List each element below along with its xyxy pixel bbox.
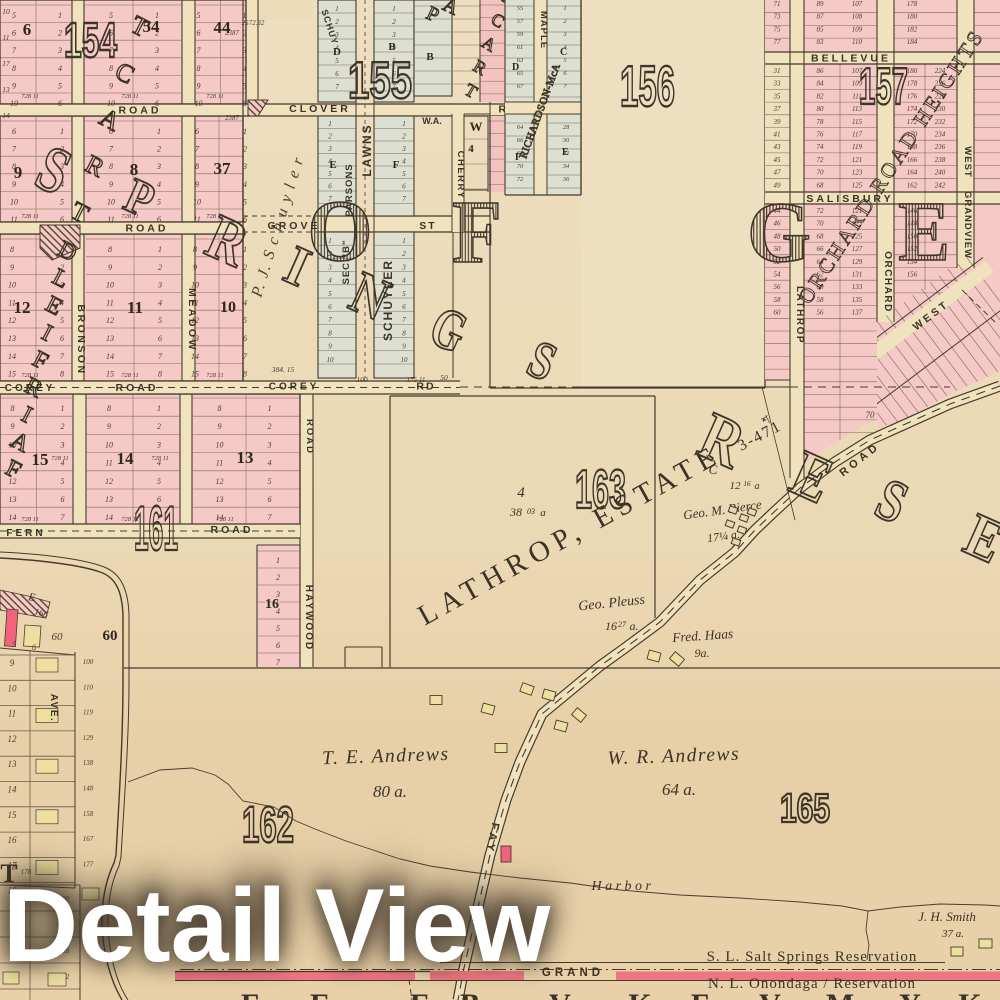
svg-text:8: 8 bbox=[195, 162, 199, 171]
svg-text:2: 2 bbox=[276, 573, 280, 582]
svg-text:ROAD: ROAD bbox=[304, 419, 315, 455]
svg-text:W: W bbox=[470, 119, 483, 134]
svg-text:8: 8 bbox=[328, 329, 332, 337]
svg-text:4: 4 bbox=[155, 64, 159, 73]
svg-text:11: 11 bbox=[216, 459, 223, 468]
svg-text:ROAD: ROAD bbox=[211, 524, 254, 536]
svg-text:175 11: 175 11 bbox=[407, 376, 426, 384]
svg-text:33: 33 bbox=[773, 80, 782, 88]
svg-text:4: 4 bbox=[335, 44, 339, 52]
svg-text:a: a bbox=[540, 507, 546, 519]
svg-text:6: 6 bbox=[243, 334, 247, 343]
svg-text:38: 38 bbox=[509, 505, 522, 519]
svg-text:60: 60 bbox=[774, 309, 782, 317]
svg-text:9: 9 bbox=[195, 180, 199, 189]
svg-text:4: 4 bbox=[58, 64, 62, 73]
svg-text:17: 17 bbox=[2, 59, 10, 68]
svg-text:10: 10 bbox=[191, 281, 199, 290]
svg-text:158: 158 bbox=[83, 810, 94, 818]
svg-text:GRAND: GRAND bbox=[542, 967, 604, 979]
svg-text:3: 3 bbox=[401, 263, 406, 271]
svg-text:84: 84 bbox=[817, 80, 825, 88]
svg-text:12: 12 bbox=[8, 316, 16, 325]
svg-text:5: 5 bbox=[12, 11, 16, 20]
svg-text:2: 2 bbox=[402, 133, 406, 141]
svg-text:10: 10 bbox=[105, 440, 113, 449]
svg-text:10: 10 bbox=[220, 299, 236, 316]
svg-text:F: F bbox=[393, 159, 400, 171]
svg-text:1: 1 bbox=[276, 556, 280, 565]
svg-text:5: 5 bbox=[61, 477, 65, 486]
svg-text:3: 3 bbox=[334, 31, 339, 39]
svg-text:28: 28 bbox=[563, 124, 570, 131]
svg-text:70: 70 bbox=[817, 169, 825, 177]
svg-text:14: 14 bbox=[191, 352, 199, 361]
svg-text:86: 86 bbox=[817, 67, 825, 75]
svg-text:10: 10 bbox=[10, 99, 18, 108]
svg-text:156: 156 bbox=[620, 54, 675, 118]
svg-text:3: 3 bbox=[267, 440, 272, 449]
svg-text:11: 11 bbox=[105, 459, 112, 468]
svg-text:10: 10 bbox=[8, 683, 18, 693]
svg-text:3: 3 bbox=[327, 145, 332, 153]
svg-text:12: 12 bbox=[105, 477, 113, 486]
svg-text:60: 60 bbox=[103, 628, 118, 644]
svg-text:5: 5 bbox=[402, 170, 406, 178]
svg-text:13: 13 bbox=[237, 448, 254, 467]
svg-text:AVE.: AVE. bbox=[48, 694, 59, 723]
svg-text:9: 9 bbox=[12, 81, 16, 90]
svg-text:15: 15 bbox=[8, 810, 18, 820]
svg-text:3: 3 bbox=[401, 145, 406, 153]
svg-text:9: 9 bbox=[10, 658, 15, 668]
svg-text:6: 6 bbox=[32, 643, 36, 652]
svg-text:5: 5 bbox=[60, 316, 64, 325]
svg-text:5: 5 bbox=[328, 290, 332, 298]
svg-text:9: 9 bbox=[107, 422, 111, 431]
svg-text:5: 5 bbox=[402, 290, 406, 298]
svg-text:2: 2 bbox=[158, 263, 162, 272]
svg-text:109: 109 bbox=[852, 25, 863, 33]
svg-text:9: 9 bbox=[402, 343, 406, 351]
svg-text:70: 70 bbox=[866, 410, 876, 420]
svg-text:167: 167 bbox=[83, 835, 94, 843]
svg-text:11: 11 bbox=[193, 215, 200, 224]
svg-text:D: D bbox=[512, 62, 519, 73]
svg-text:6: 6 bbox=[197, 29, 201, 38]
svg-text:E: E bbox=[310, 988, 330, 1000]
svg-text:V: V bbox=[759, 988, 781, 1000]
svg-text:K: K bbox=[958, 988, 982, 1000]
svg-text:6: 6 bbox=[402, 183, 406, 191]
svg-text:162: 162 bbox=[242, 796, 294, 853]
svg-text:11: 11 bbox=[10, 215, 17, 224]
svg-text:129: 129 bbox=[852, 258, 863, 266]
svg-text:9: 9 bbox=[11, 422, 15, 431]
svg-text:16: 16 bbox=[8, 835, 18, 845]
svg-text:133: 133 bbox=[852, 283, 863, 291]
svg-text:72: 72 bbox=[517, 176, 524, 183]
svg-text:10: 10 bbox=[401, 356, 409, 364]
svg-text:4: 4 bbox=[268, 459, 272, 468]
svg-text:13: 13 bbox=[9, 495, 17, 504]
svg-text:7: 7 bbox=[402, 195, 406, 203]
svg-text:121: 121 bbox=[852, 156, 863, 164]
svg-text:S. L. Salt Springs Reser: S. L. Salt Springs Reservation bbox=[707, 949, 918, 965]
svg-text:4: 4 bbox=[402, 158, 406, 166]
svg-text:89: 89 bbox=[817, 0, 825, 8]
svg-text:37 a.: 37 a. bbox=[941, 928, 964, 940]
svg-text:T. E. Andrews: T. E. Andrews bbox=[322, 744, 450, 769]
svg-text:N. L. Onondaga / Reservati: N. L. Onondaga / Reservation bbox=[708, 976, 916, 992]
svg-text:13: 13 bbox=[8, 334, 16, 343]
svg-text:39: 39 bbox=[773, 118, 782, 126]
svg-text:728 11: 728 11 bbox=[121, 372, 138, 379]
svg-text:3: 3 bbox=[391, 31, 396, 39]
svg-text:6: 6 bbox=[23, 20, 32, 39]
svg-text:5: 5 bbox=[155, 81, 159, 90]
svg-text:240: 240 bbox=[935, 169, 946, 177]
svg-text:6: 6 bbox=[328, 303, 332, 311]
svg-text:59: 59 bbox=[517, 31, 524, 38]
svg-text:1: 1 bbox=[243, 127, 247, 136]
svg-text:12: 12 bbox=[14, 298, 31, 317]
svg-text:72: 72 bbox=[817, 207, 825, 215]
svg-text:137: 137 bbox=[852, 309, 863, 317]
svg-text:4: 4 bbox=[328, 158, 332, 166]
svg-text:16: 16 bbox=[744, 480, 752, 488]
svg-text:73: 73 bbox=[774, 13, 782, 21]
svg-text:55: 55 bbox=[517, 5, 524, 12]
svg-text:5: 5 bbox=[197, 11, 201, 20]
svg-text:71: 71 bbox=[774, 0, 781, 8]
svg-text:5: 5 bbox=[157, 477, 161, 486]
svg-text:119: 119 bbox=[83, 709, 93, 717]
svg-text:6: 6 bbox=[155, 99, 159, 108]
svg-text:68: 68 bbox=[817, 232, 825, 240]
svg-text:64 a.: 64 a. bbox=[662, 780, 696, 799]
svg-text:a.: a. bbox=[630, 619, 639, 633]
svg-text:8: 8 bbox=[60, 370, 64, 379]
svg-text:14: 14 bbox=[8, 785, 18, 795]
svg-text:F: F bbox=[241, 988, 259, 1000]
svg-text:F: F bbox=[515, 152, 521, 163]
svg-text:12: 12 bbox=[8, 734, 18, 744]
svg-text:J. H. Smith: J. H. Smith bbox=[918, 909, 976, 924]
svg-text:70: 70 bbox=[817, 220, 825, 228]
svg-text:43: 43 bbox=[774, 143, 782, 151]
svg-text:COREY: COREY bbox=[269, 382, 320, 393]
svg-text:115: 115 bbox=[852, 118, 862, 126]
svg-text:5: 5 bbox=[158, 316, 162, 325]
svg-text:11: 11 bbox=[8, 709, 16, 719]
svg-text:B: B bbox=[426, 51, 434, 63]
svg-text:6: 6 bbox=[60, 215, 64, 224]
svg-text:8: 8 bbox=[158, 370, 162, 379]
svg-text:6: 6 bbox=[60, 334, 64, 343]
svg-text:8: 8 bbox=[10, 245, 14, 254]
svg-text:64: 64 bbox=[517, 124, 524, 131]
svg-text:14: 14 bbox=[105, 513, 113, 522]
svg-text:8: 8 bbox=[11, 404, 15, 413]
svg-text:5: 5 bbox=[60, 197, 64, 206]
svg-text:35: 35 bbox=[773, 92, 782, 100]
svg-text:12: 12 bbox=[106, 316, 114, 325]
svg-text:131: 131 bbox=[852, 271, 863, 279]
svg-text:10: 10 bbox=[8, 281, 16, 290]
svg-text:BRONSON: BRONSON bbox=[75, 304, 87, 375]
svg-text:100: 100 bbox=[83, 658, 94, 666]
svg-text:44: 44 bbox=[214, 18, 232, 37]
svg-text:163: 163 bbox=[575, 460, 626, 521]
svg-text:9: 9 bbox=[10, 263, 14, 272]
svg-text:157: 157 bbox=[859, 57, 908, 115]
svg-text:K: K bbox=[628, 988, 652, 1000]
svg-text:9: 9 bbox=[328, 343, 332, 351]
svg-text:2: 2 bbox=[243, 145, 247, 154]
svg-text:728 11: 728 11 bbox=[51, 455, 68, 462]
svg-text:180: 180 bbox=[907, 13, 918, 21]
svg-text:7: 7 bbox=[402, 316, 406, 324]
svg-text:384. 15: 384. 15 bbox=[271, 365, 295, 374]
svg-text:F: F bbox=[691, 988, 709, 1000]
svg-text:129: 129 bbox=[83, 734, 94, 742]
svg-text:728 11: 728 11 bbox=[151, 455, 168, 462]
svg-text:E: E bbox=[410, 988, 430, 1000]
svg-text:2: 2 bbox=[58, 29, 62, 38]
svg-text:8: 8 bbox=[218, 404, 222, 413]
svg-text:8: 8 bbox=[193, 245, 197, 254]
svg-text:148: 148 bbox=[83, 785, 94, 793]
svg-text:9: 9 bbox=[197, 81, 201, 90]
svg-text:15: 15 bbox=[32, 450, 49, 469]
svg-text:03: 03 bbox=[527, 507, 535, 516]
svg-text:15: 15 bbox=[106, 370, 114, 379]
svg-text:8: 8 bbox=[197, 64, 201, 73]
svg-text:3: 3 bbox=[156, 162, 161, 171]
svg-text:80 a.: 80 a. bbox=[373, 782, 407, 801]
svg-text:V: V bbox=[549, 988, 571, 1000]
svg-text:45: 45 bbox=[774, 156, 782, 164]
svg-text:66: 66 bbox=[517, 137, 524, 144]
svg-text:10: 10 bbox=[327, 356, 335, 364]
svg-text:74: 74 bbox=[817, 143, 825, 151]
svg-text:80: 80 bbox=[817, 105, 825, 113]
svg-text:10: 10 bbox=[216, 440, 224, 449]
svg-text:100: 100 bbox=[356, 375, 368, 384]
svg-text:5: 5 bbox=[58, 81, 62, 90]
svg-text:1: 1 bbox=[268, 404, 272, 413]
svg-text:G: G bbox=[747, 185, 811, 280]
svg-text:27: 27 bbox=[618, 620, 627, 629]
svg-text:C: C bbox=[560, 47, 567, 58]
svg-text:1: 1 bbox=[328, 120, 332, 128]
svg-text:58: 58 bbox=[774, 296, 782, 304]
svg-text:2: 2 bbox=[243, 263, 247, 272]
svg-text:12: 12 bbox=[216, 477, 224, 486]
svg-text:5: 5 bbox=[243, 316, 247, 325]
svg-text:1: 1 bbox=[402, 237, 406, 245]
svg-text:2: 2 bbox=[157, 422, 161, 431]
svg-text:13: 13 bbox=[2, 85, 10, 94]
svg-text:5: 5 bbox=[243, 197, 247, 206]
svg-text:ST: ST bbox=[419, 220, 436, 232]
svg-text:234: 234 bbox=[935, 131, 946, 139]
svg-text:164: 164 bbox=[907, 169, 918, 177]
svg-text:3: 3 bbox=[60, 440, 65, 449]
svg-text:67: 67 bbox=[517, 83, 524, 90]
svg-text:123: 123 bbox=[852, 169, 863, 177]
svg-text:180: 180 bbox=[907, 67, 918, 75]
svg-text:56: 56 bbox=[817, 309, 825, 317]
svg-text:5: 5 bbox=[268, 477, 272, 486]
svg-text:8: 8 bbox=[108, 245, 112, 254]
svg-text:6: 6 bbox=[195, 127, 199, 136]
svg-text:10: 10 bbox=[2, 7, 10, 16]
svg-text:Harbor: Harbor bbox=[590, 879, 654, 894]
svg-text:6: 6 bbox=[12, 29, 16, 38]
svg-text:12: 12 bbox=[191, 316, 199, 325]
svg-text:37: 37 bbox=[773, 105, 782, 113]
svg-text:8: 8 bbox=[402, 329, 406, 337]
svg-text:2: 2 bbox=[335, 18, 339, 26]
svg-text:728 11: 728 11 bbox=[121, 93, 138, 100]
svg-text:182: 182 bbox=[907, 25, 918, 33]
svg-text:13: 13 bbox=[216, 495, 224, 504]
svg-text:728 11: 728 11 bbox=[206, 372, 223, 379]
svg-text:9: 9 bbox=[109, 180, 113, 189]
svg-text:11: 11 bbox=[3, 33, 10, 42]
svg-text:a: a bbox=[755, 481, 760, 492]
svg-text:6: 6 bbox=[61, 495, 65, 504]
svg-text:36: 36 bbox=[562, 176, 570, 183]
svg-text:77: 77 bbox=[774, 38, 782, 46]
svg-text:178: 178 bbox=[907, 0, 918, 8]
svg-text:178: 178 bbox=[907, 80, 918, 88]
svg-text:6: 6 bbox=[158, 334, 162, 343]
svg-text:6: 6 bbox=[402, 303, 406, 311]
svg-text:Y: Y bbox=[899, 988, 921, 1000]
svg-text:72: 72 bbox=[817, 156, 825, 164]
svg-text:110: 110 bbox=[83, 683, 93, 691]
svg-text:135: 135 bbox=[852, 296, 863, 304]
svg-text:4: 4 bbox=[158, 298, 162, 307]
svg-text:47: 47 bbox=[774, 169, 782, 177]
svg-text:78: 78 bbox=[817, 118, 825, 126]
svg-text:9a.: 9a. bbox=[695, 646, 710, 660]
svg-text:31: 31 bbox=[773, 67, 781, 75]
svg-text:108: 108 bbox=[852, 13, 863, 21]
svg-text:68: 68 bbox=[817, 181, 825, 189]
svg-text:2572.32: 2572.32 bbox=[242, 19, 265, 27]
svg-text:236: 236 bbox=[935, 143, 946, 151]
svg-text:8: 8 bbox=[107, 404, 111, 413]
svg-text:13: 13 bbox=[106, 334, 114, 343]
svg-text:2: 2 bbox=[157, 145, 161, 154]
svg-text:16: 16 bbox=[605, 619, 617, 633]
svg-text:11: 11 bbox=[107, 215, 114, 224]
svg-text:14: 14 bbox=[117, 449, 135, 468]
svg-text:E: E bbox=[898, 183, 950, 279]
svg-text:4: 4 bbox=[402, 277, 406, 285]
svg-text:37: 37 bbox=[214, 159, 232, 178]
svg-text:10: 10 bbox=[107, 197, 115, 206]
svg-text:10: 10 bbox=[195, 99, 203, 108]
svg-text:6: 6 bbox=[335, 70, 339, 78]
svg-text:232: 232 bbox=[935, 118, 946, 126]
svg-text:1: 1 bbox=[61, 404, 65, 413]
svg-text:154: 154 bbox=[64, 12, 117, 68]
svg-text:14: 14 bbox=[9, 513, 17, 522]
svg-text:125: 125 bbox=[852, 181, 863, 189]
svg-text:5: 5 bbox=[12, 640, 16, 649]
svg-text:FERN: FERN bbox=[6, 528, 45, 539]
svg-text:8: 8 bbox=[243, 370, 247, 379]
svg-text:76: 76 bbox=[817, 131, 825, 139]
svg-text:1: 1 bbox=[392, 5, 396, 13]
svg-text:119: 119 bbox=[852, 143, 862, 151]
svg-text:16: 16 bbox=[265, 597, 279, 612]
svg-text:3: 3 bbox=[154, 46, 159, 55]
svg-text:11: 11 bbox=[106, 298, 113, 307]
svg-text:728 11: 728 11 bbox=[21, 213, 38, 220]
svg-text:3: 3 bbox=[57, 46, 62, 55]
svg-text:B: B bbox=[460, 988, 480, 1000]
svg-text:10: 10 bbox=[10, 197, 18, 206]
svg-text:5: 5 bbox=[328, 170, 332, 178]
svg-text:728 11: 728 11 bbox=[216, 516, 233, 523]
svg-text:161: 161 bbox=[134, 494, 178, 564]
svg-text:M: M bbox=[826, 988, 854, 1000]
svg-text:12: 12 bbox=[730, 480, 742, 492]
svg-text:60: 60 bbox=[52, 631, 64, 643]
svg-text:6: 6 bbox=[268, 495, 272, 504]
svg-text:117: 117 bbox=[852, 131, 862, 139]
svg-text:15: 15 bbox=[191, 370, 199, 379]
svg-text:1: 1 bbox=[402, 120, 406, 128]
svg-text:6: 6 bbox=[276, 641, 280, 650]
svg-text:728 11: 728 11 bbox=[21, 93, 38, 100]
svg-text:1: 1 bbox=[335, 5, 339, 13]
svg-text:3: 3 bbox=[242, 46, 247, 55]
svg-text:WEST: WEST bbox=[962, 146, 973, 177]
svg-text:9: 9 bbox=[14, 163, 23, 182]
svg-text:56: 56 bbox=[774, 283, 782, 291]
svg-text:6: 6 bbox=[157, 215, 161, 224]
svg-text:ORCHARD: ORCHARD bbox=[882, 251, 893, 313]
svg-text:9: 9 bbox=[108, 263, 112, 272]
svg-text:10: 10 bbox=[106, 281, 114, 290]
svg-text:F: F bbox=[452, 182, 501, 282]
svg-text:2: 2 bbox=[402, 250, 406, 258]
svg-text:85: 85 bbox=[817, 25, 825, 33]
svg-text:30: 30 bbox=[562, 137, 570, 144]
svg-text:4: 4 bbox=[517, 485, 525, 501]
svg-text:728 11: 728 11 bbox=[21, 516, 38, 523]
svg-text:155: 155 bbox=[348, 51, 412, 109]
svg-text:LAWNS: LAWNS bbox=[360, 123, 374, 176]
svg-text:2387: 2387 bbox=[225, 114, 240, 122]
svg-text:W.A.: W.A. bbox=[422, 116, 442, 126]
svg-text:83: 83 bbox=[817, 38, 825, 46]
svg-text:4: 4 bbox=[243, 298, 247, 307]
svg-text:2: 2 bbox=[328, 133, 332, 141]
svg-text:728 11: 728 11 bbox=[206, 93, 223, 100]
svg-text:34: 34 bbox=[562, 163, 570, 170]
svg-text:HAYWOOD: HAYWOOD bbox=[303, 585, 314, 651]
svg-text:13: 13 bbox=[8, 759, 18, 769]
svg-text:11: 11 bbox=[191, 298, 198, 307]
